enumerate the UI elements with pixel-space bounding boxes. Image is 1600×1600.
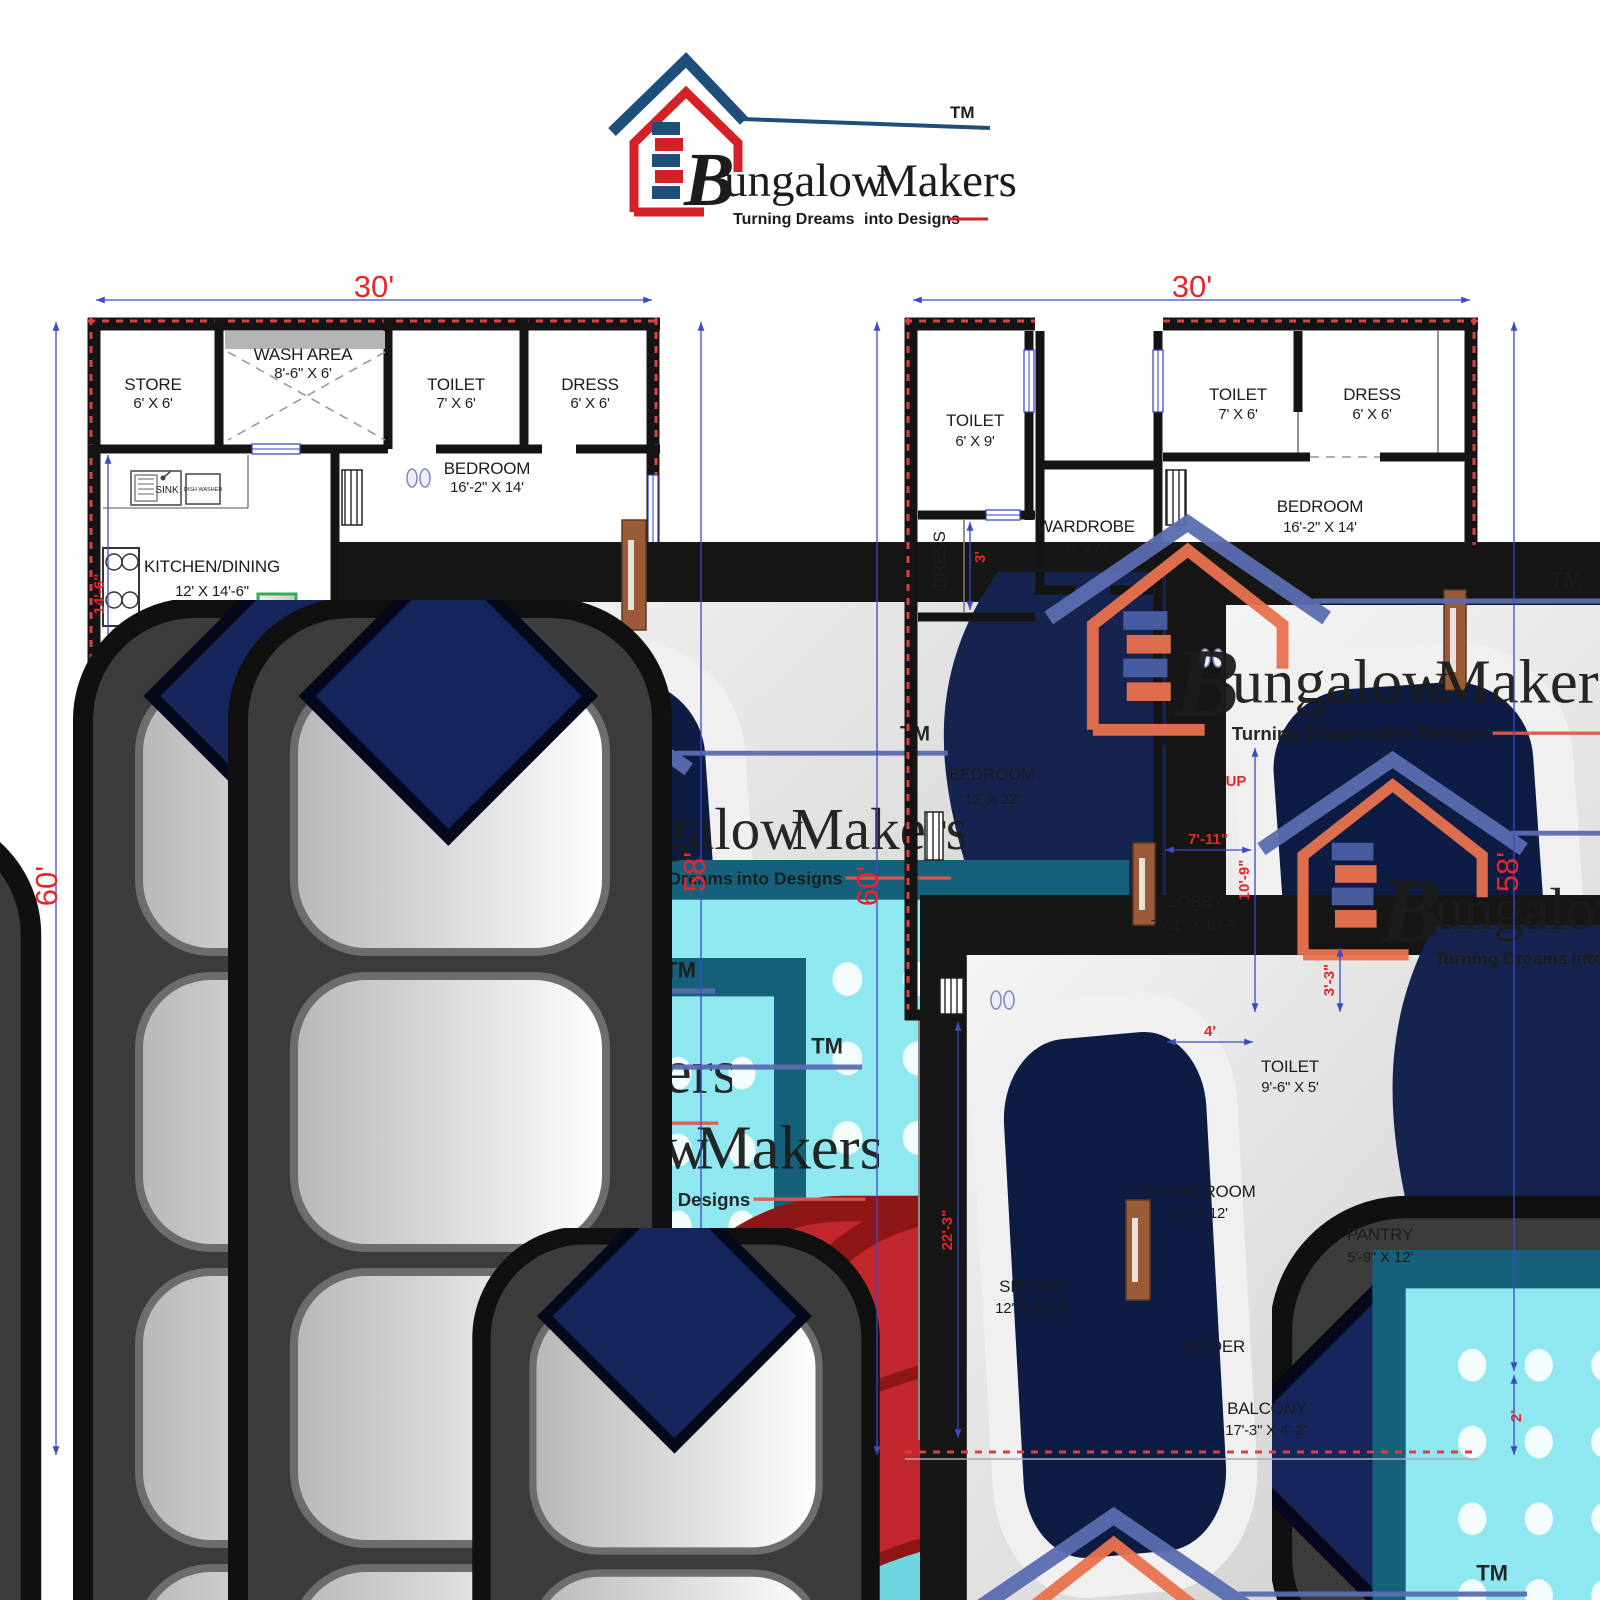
room-balcony: BALCONY (1227, 1399, 1307, 1418)
room-kitchen: KITCHEN/DINING (144, 557, 280, 576)
room-bedroom-right-size: 16'-2" X 14' (1283, 519, 1357, 536)
dim-kitchen: 14'-6" (91, 574, 108, 615)
room-bedroom-left: BEDROOM (949, 765, 1035, 784)
logo-tagline-1: Turning Dreams (733, 211, 855, 228)
logo-word-1: ungalow (724, 155, 886, 207)
dim-left-height-2: 60' (850, 866, 885, 906)
room-wardrobe2-size: 6' X 6' (1066, 541, 1106, 558)
dim-lobby-w: 7'-11" (1188, 831, 1228, 848)
room-kitchen-size: 12' X 14'-6" (175, 583, 249, 600)
room-dress-top: DRESS (1343, 385, 1401, 404)
room-pantry-size: 5'-9" X 12' (1347, 1249, 1413, 1266)
logo-tm: TM (950, 103, 975, 122)
dim-right-height-2: 58' (1490, 852, 1525, 892)
vent (925, 812, 943, 860)
logo-bricks-icon (652, 122, 683, 199)
dim-stair-w: 3'-3" (1321, 964, 1338, 996)
vent (1166, 470, 1186, 525)
dim-top-width-2: 30' (1172, 269, 1212, 304)
floor-plan-canvas: B ungalow Makers TM Turning Dreams into … (0, 0, 1600, 1600)
room-lobby-size: 7'-11" X 10'-9" (1151, 917, 1242, 934)
room-bedroom-left-size: 12' X 22' (964, 791, 1020, 808)
coffee-table (1389, 1269, 1600, 1600)
dim-sitout-h: 22'-3" (939, 1210, 956, 1251)
room-toilet-top: TOILET (427, 375, 485, 394)
room-wash-area: WASH AREA (254, 345, 354, 364)
dim-top-width: 30' (354, 269, 394, 304)
room-slider: SLIDER (1185, 1337, 1245, 1356)
dim-right-height: 58' (677, 852, 712, 892)
stairs-up-label-2: UP (1226, 773, 1247, 790)
dim-left-height: 60' (29, 866, 64, 906)
room-sitout: SIT-OUT (999, 1277, 1065, 1296)
sofa (0, 766, 31, 1600)
room-living2: LIVING ROOM (1144, 1182, 1255, 1201)
room-store: STORE (124, 375, 181, 394)
room-dress-side: DRESS (930, 531, 949, 589)
vent (342, 470, 362, 525)
room-dress-top-size: 6' X 6' (1352, 406, 1392, 423)
room-toilet-mid2-size: 9'-6" X 5' (1261, 1079, 1319, 1096)
room-toilet-top-size: 7' X 6' (436, 395, 476, 412)
room-toilet-tl: TOILET (946, 411, 1004, 430)
dim-lobby-h: 10'-9" (1236, 860, 1253, 901)
vent (940, 978, 964, 1014)
room-bedroom: BEDROOM (444, 459, 530, 478)
room-lobby: LOBBY (1168, 892, 1224, 911)
room-pantry: PANTRY (1347, 1225, 1413, 1244)
dishwasher-label: DISH WASHER (184, 487, 223, 493)
dim-passage: 4' (1204, 1023, 1216, 1040)
brand-logo: B ungalow Makers TM Turning Dreams into … (612, 60, 1017, 228)
logo-tagline-2: into Designs (864, 211, 960, 228)
room-living2-size: 10' X 12' (1172, 1205, 1228, 1222)
dim-bottom-2ft-2: 2' (1508, 1410, 1525, 1422)
room-store-size: 6' X 6' (133, 395, 173, 412)
room-toilet-top2-size: 7' X 6' (1218, 406, 1258, 423)
room-dress: DRESS (561, 375, 619, 394)
room-balcony-size: 17'-3" X 4'-2" (1225, 1422, 1309, 1439)
room-sitout-size: 12' X 22'-3" (995, 1300, 1069, 1317)
room-toilet-tl-size: 6' X 9' (955, 433, 995, 450)
room-bedroom-size: 16'-2" X 14' (450, 479, 524, 496)
dim-dress-depth: 3' (972, 551, 989, 563)
room-bedroom-right: BEDROOM (1277, 497, 1363, 516)
sink-label: SINK (155, 485, 179, 496)
room-wash-area-size: 8'-6" X 6' (274, 365, 332, 382)
room-dress-size: 6' X 6' (570, 395, 610, 412)
room-wardrobe2: WARDROBE (1037, 517, 1135, 536)
room-toilet-top2: TOILET (1209, 385, 1267, 404)
logo-word-2: Makers (876, 155, 1017, 207)
sofa (481, 1186, 870, 1600)
room-toilet-mid2: TOILET (1261, 1057, 1319, 1076)
